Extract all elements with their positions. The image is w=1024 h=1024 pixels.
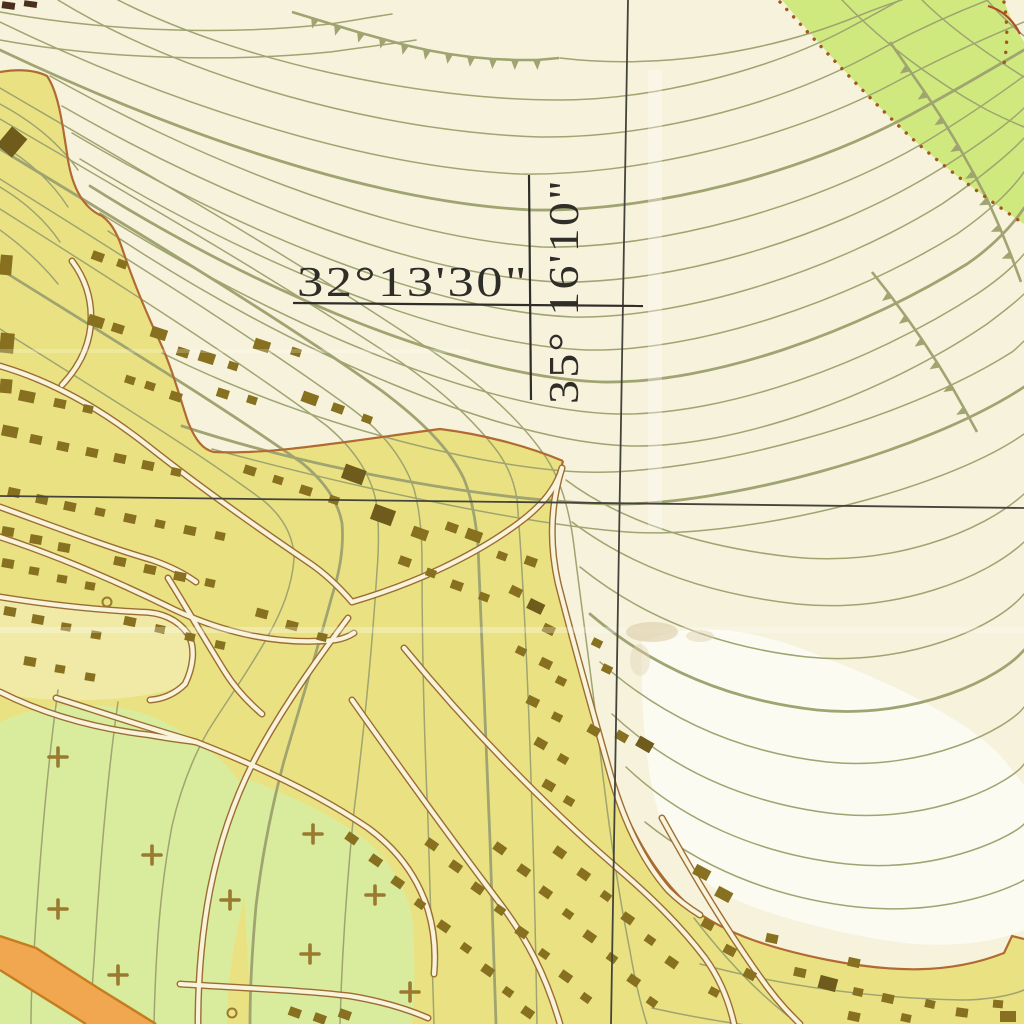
- map-viewport: 32°13'30" 35° 16'10": [0, 0, 1024, 1024]
- latitude-label: 32°13'30": [297, 260, 529, 306]
- topographic-map: 32°13'30" 35° 16'10": [0, 0, 1024, 1024]
- longitude-label: 35° 16'10": [542, 178, 588, 404]
